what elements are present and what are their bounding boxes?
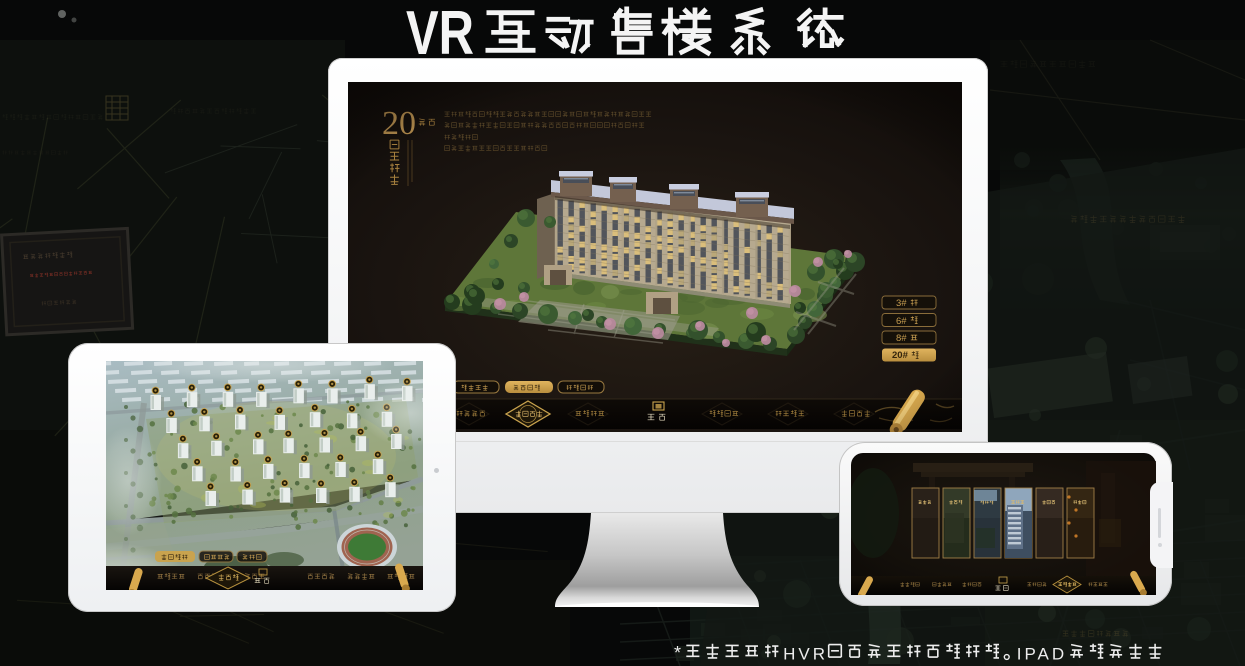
- svg-text:HVR: HVR: [783, 645, 828, 664]
- svg-text:IPAD: IPAD: [1017, 645, 1067, 664]
- svg-text:*: *: [674, 643, 681, 663]
